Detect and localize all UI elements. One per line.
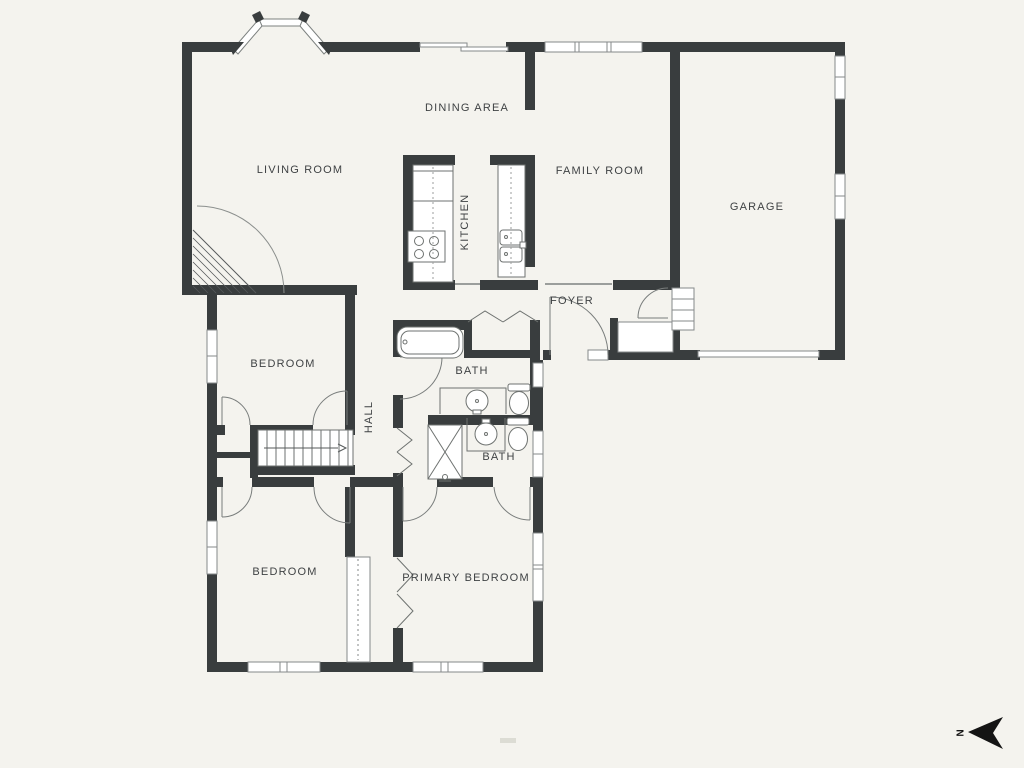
primary-closet-bifold: [397, 594, 413, 628]
toilet-tank: [507, 418, 529, 425]
stairs-icon: [258, 430, 353, 466]
garage-door: [698, 351, 819, 357]
hall-closet-bifold: [397, 428, 412, 452]
linen-closet-bifold: [468, 311, 503, 322]
tub-faucet-icon: [403, 340, 407, 344]
compass-north-icon: [968, 717, 1003, 749]
bath-upper-door: [400, 357, 442, 399]
shower-valve-icon: [443, 475, 448, 480]
fridge-icon: [413, 171, 453, 201]
sidelight-window: [588, 350, 608, 360]
garage-entry-door: [638, 288, 668, 318]
sliding-door: [420, 43, 508, 51]
toilet-icon: [509, 428, 528, 451]
toilet-icon: [510, 392, 529, 415]
room-label-foyer: FOYER: [550, 295, 594, 307]
bay-window: [228, 11, 334, 55]
faucet-icon: [482, 419, 490, 423]
hall-closet-bifold: [397, 452, 412, 476]
room-label-family-room: FAMILY ROOM: [556, 165, 645, 177]
bedroom-upper-door: [313, 391, 347, 425]
bedroom-lower-door: [314, 487, 350, 523]
room-label-primary-bedroom: PRIMARY BEDROOM: [402, 572, 530, 584]
fireplace-icon: [193, 206, 284, 293]
room-label-bath-lower: BATH: [482, 451, 515, 463]
toilet-tank: [508, 384, 530, 391]
entry-steps-icon: [672, 288, 694, 330]
room-label-kitchen: KITCHEN: [459, 194, 471, 251]
room-label-bedroom-upper: BEDROOM: [250, 358, 315, 370]
watermark: [500, 738, 516, 743]
room-label-bedroom-lower: BEDROOM: [252, 566, 317, 578]
faucet-icon: [520, 242, 526, 248]
window: [545, 42, 642, 52]
window: [248, 662, 320, 672]
room-label-hall: HALL: [363, 401, 375, 433]
bedroom-lower-closet-door: [222, 487, 252, 517]
foyer-closet: [618, 322, 673, 352]
room-label-living-room: LIVING ROOM: [257, 164, 344, 176]
room-label-garage: GARAGE: [730, 201, 784, 213]
stove-icon: [408, 231, 445, 262]
floor-plan-page: LIVING ROOM DINING AREA KITCHEN FAMILY R…: [0, 0, 1024, 768]
floor-plan-canvas: [0, 0, 1024, 768]
window: [533, 363, 543, 387]
window: [533, 533, 543, 601]
bedroom-upper-closet-door: [222, 397, 250, 425]
kitchen-sink-icon: [500, 247, 522, 262]
faucet-icon: [473, 410, 481, 414]
primary-bedroom-door: [403, 487, 437, 521]
room-label-bath-upper: BATH: [455, 365, 488, 377]
room-label-dining-area: DINING AREA: [425, 102, 509, 114]
bath-lower-fixtures: [428, 418, 529, 481]
bath-lower-door: [494, 487, 530, 520]
compass-north-label: N: [954, 729, 965, 736]
